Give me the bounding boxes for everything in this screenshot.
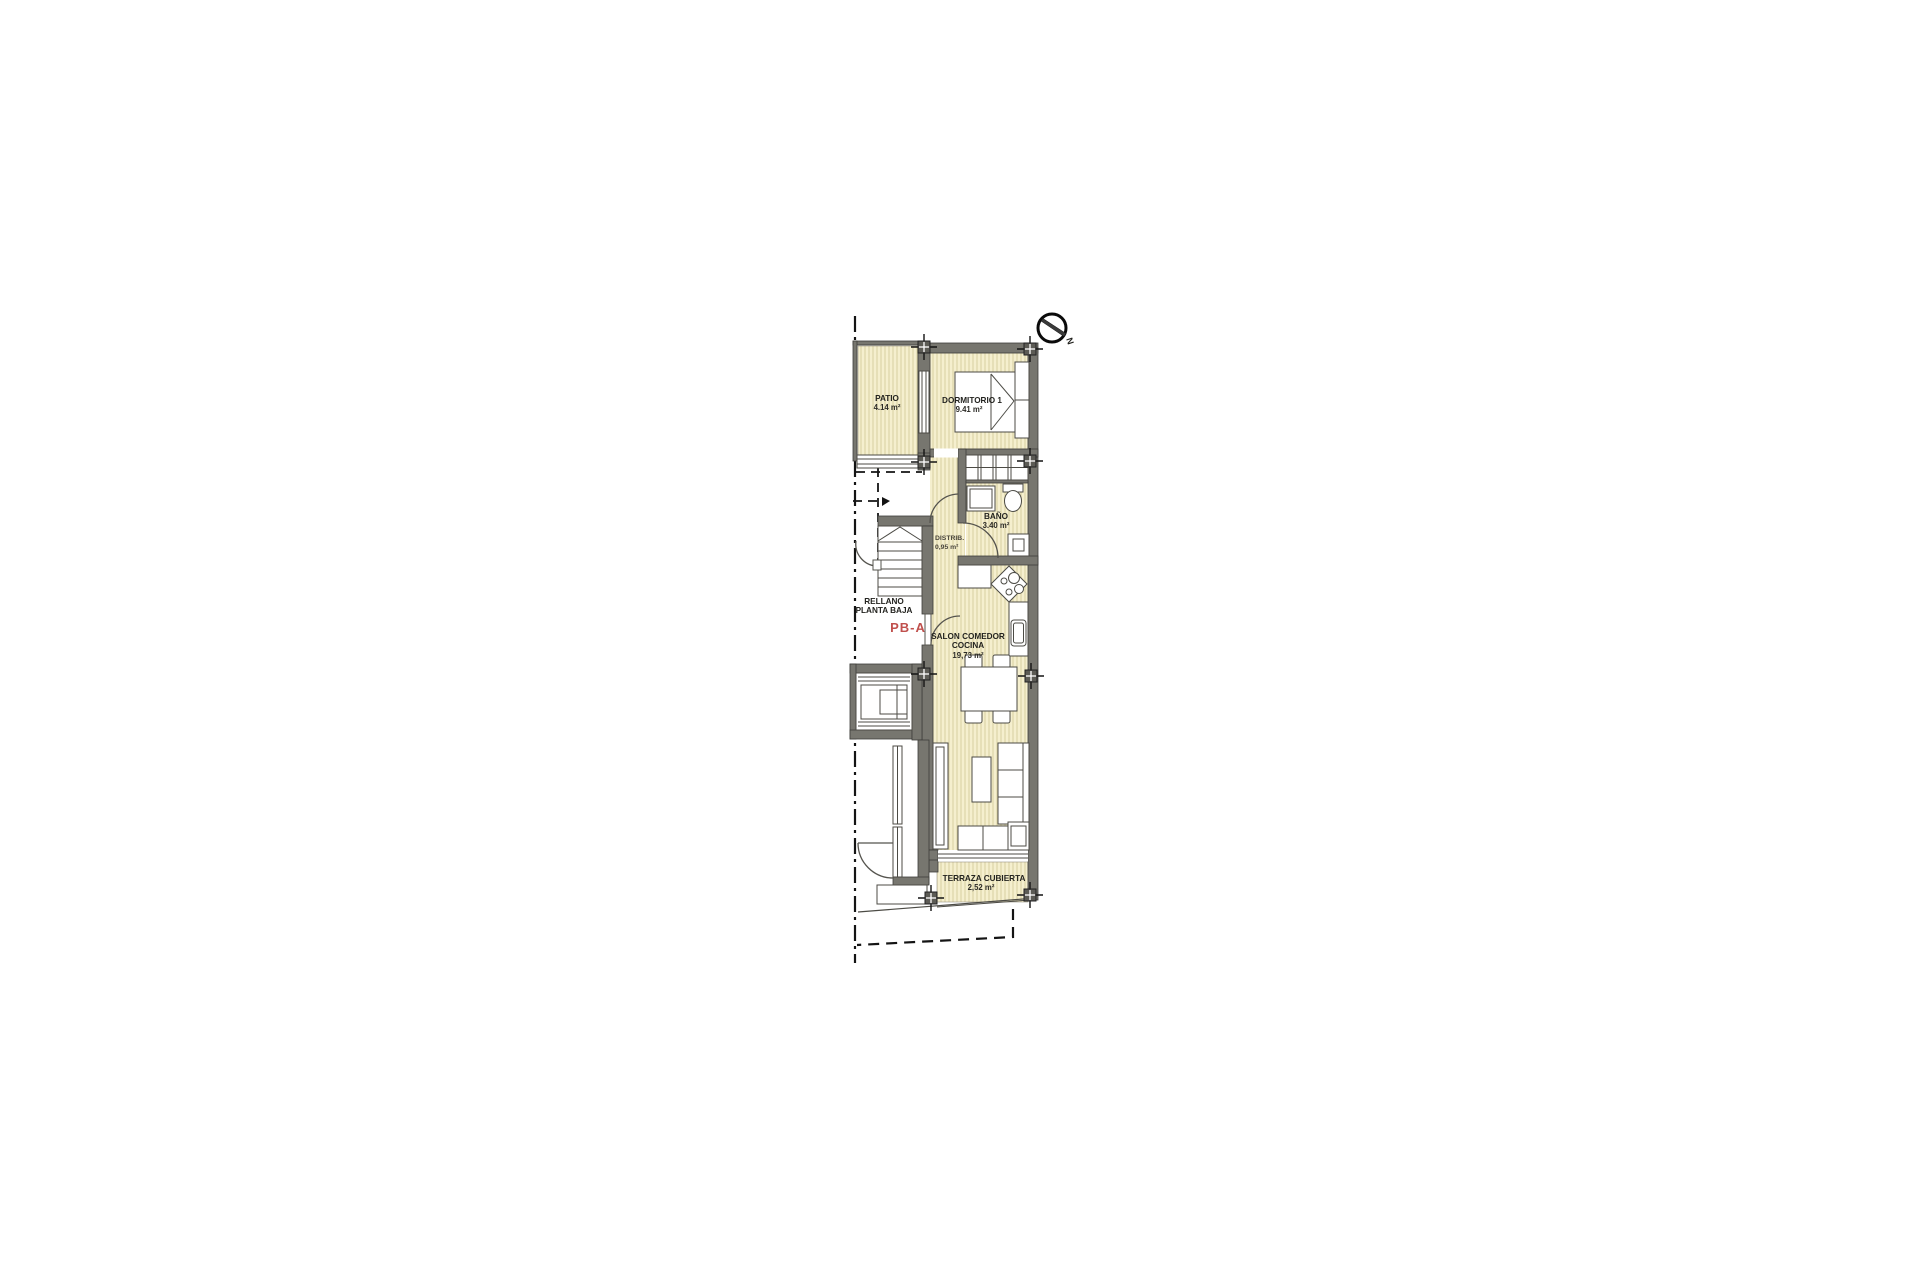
sofa-cushion xyxy=(998,743,1023,770)
toilet-bowl xyxy=(1005,491,1022,512)
door-arc-lower-left xyxy=(858,843,893,878)
label-terraza-name: TERRAZA CUBIERTA xyxy=(943,874,1026,883)
label-terraza-area: 2,52 m² xyxy=(968,883,995,892)
kitchen-sink-basin xyxy=(1014,623,1024,643)
label-distrib-area: 0,95 m² xyxy=(935,544,959,551)
dining-table xyxy=(961,667,1017,711)
sofa-cushion xyxy=(998,770,1023,797)
chair xyxy=(993,710,1010,723)
label-rellano-line2: PLANTA BAJA xyxy=(856,606,913,615)
stairs xyxy=(878,526,922,596)
burner-1 xyxy=(1009,573,1020,584)
window-lower-left-2 xyxy=(893,827,902,877)
armchair-seat xyxy=(1011,826,1026,846)
tv-sideboard-inner xyxy=(936,747,944,845)
label-distrib-name: DISTRIB. xyxy=(935,535,964,542)
opening-dorm-door xyxy=(934,449,958,458)
sofa-back xyxy=(1023,743,1029,824)
north-compass: N xyxy=(1038,314,1076,346)
elevator xyxy=(856,673,912,730)
label-bano-area: 3.40 m² xyxy=(983,521,1010,530)
chair xyxy=(993,655,1010,668)
living-furniture xyxy=(933,743,1029,850)
wall-salon-left-upper xyxy=(922,526,933,614)
label-dormitorio-name: DORMITORIO 1 xyxy=(942,396,1002,405)
wall-bano-left xyxy=(958,449,966,523)
burner-4 xyxy=(1006,589,1012,595)
sofa-cushion xyxy=(998,797,1023,824)
door-leaf-salon xyxy=(925,614,931,645)
compass-north-label: N xyxy=(1064,336,1076,345)
kitchen-counter-top xyxy=(958,565,991,588)
sofa-cushion xyxy=(983,826,1008,850)
wall-elevator-bottom xyxy=(850,730,912,739)
window-lower-left-1 xyxy=(893,746,902,824)
chair xyxy=(965,710,982,723)
burner-2 xyxy=(1015,585,1024,594)
page: N PATIO 4.14 m² DORMITORIO 1 9.41 m² BAÑ… xyxy=(0,0,1920,1280)
plot-line-dashed xyxy=(857,909,1013,945)
opening-terraza-door xyxy=(938,851,1028,862)
sofa-cushion xyxy=(958,826,983,850)
wall-patio-left xyxy=(853,341,857,461)
label-patio-area: 4.14 m² xyxy=(874,403,901,412)
wall-elevator-left xyxy=(850,664,856,739)
vanity-basin xyxy=(970,489,992,508)
label-dormitorio-area: 9.41 m² xyxy=(956,405,983,414)
label-salon-line2: COCINA xyxy=(952,641,984,650)
window-patio-dorm xyxy=(919,371,929,433)
label-bano-name: BAÑO xyxy=(984,511,1009,521)
label-rellano-line1: RELLANO xyxy=(864,597,904,606)
door-leaf-stairwell xyxy=(873,560,881,570)
wall-rellano-top xyxy=(878,516,933,526)
label-salon-area: 19,73 m² xyxy=(952,651,984,660)
wall-dorm-top xyxy=(918,343,1038,353)
window-patio-bottom xyxy=(857,455,918,468)
wall-lower-bottom xyxy=(893,877,929,885)
closet xyxy=(966,455,1028,480)
label-salon-line1: SALON COMEDOR xyxy=(931,632,1005,641)
wall-lower-left xyxy=(918,740,929,884)
unit-code-label: PB-A xyxy=(890,620,926,635)
label-patio-name: PATIO xyxy=(875,394,899,403)
shower-drain xyxy=(1013,539,1024,551)
floor-plan-svg: N PATIO 4.14 m² DORMITORIO 1 9.41 m² BAÑ… xyxy=(0,0,1920,1280)
dashed-arrowhead xyxy=(882,497,890,506)
coffee-table xyxy=(972,757,991,802)
wall-patio-top xyxy=(853,341,918,345)
wall-elevator-top xyxy=(850,664,922,673)
entry-step xyxy=(877,885,927,904)
wall-terraza-left xyxy=(929,860,938,872)
burner-3 xyxy=(1001,578,1007,584)
